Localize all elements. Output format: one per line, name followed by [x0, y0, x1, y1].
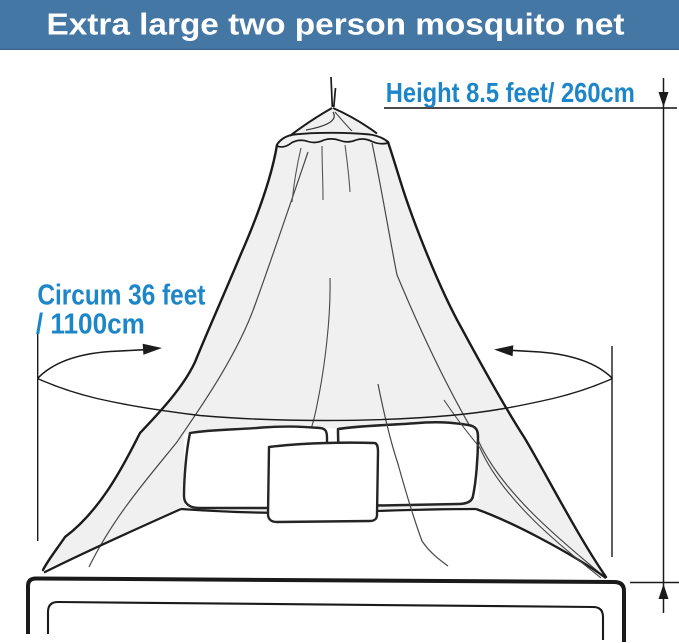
svg-text:/ 1100cm: / 1100cm — [36, 308, 145, 340]
svg-text:Circum 36 feet: Circum 36 feet — [37, 280, 205, 312]
svg-text:Extra large two person mosquit: Extra large two person mosquito net — [47, 7, 625, 42]
svg-text:Height 8.5 feet/ 260cm: Height 8.5 feet/ 260cm — [386, 77, 635, 108]
